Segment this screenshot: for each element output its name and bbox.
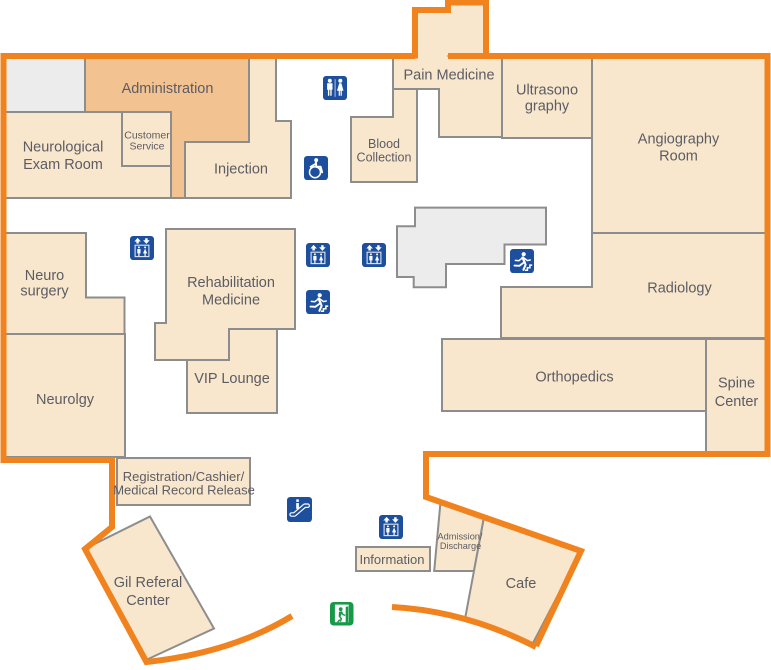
svg-text:Blood: Blood <box>368 137 400 151</box>
svg-text:Gil Referal: Gil Referal <box>114 575 183 591</box>
svg-text:Center: Center <box>715 394 759 410</box>
svg-text:Service: Service <box>129 141 164 153</box>
svg-text:Cafe: Cafe <box>506 576 537 592</box>
svg-text:graphy: graphy <box>525 99 570 115</box>
svg-text:Neurolgy: Neurolgy <box>36 392 95 408</box>
svg-text:Admission/: Admission/ <box>438 532 483 542</box>
svg-text:Administration: Administration <box>122 81 214 97</box>
svg-text:VIP Lounge: VIP Lounge <box>194 371 270 387</box>
svg-text:Medicine: Medicine <box>202 293 260 309</box>
svg-text:Injection: Injection <box>214 162 268 178</box>
svg-text:Discharge: Discharge <box>440 541 481 551</box>
svg-text:surgery: surgery <box>20 284 69 300</box>
svg-text:Ultrasono: Ultrasono <box>516 83 578 99</box>
svg-text:Rehabilitation: Rehabilitation <box>187 275 275 291</box>
svg-text:Exam Room: Exam Room <box>23 157 103 173</box>
svg-text:Medical Record Release: Medical Record Release <box>113 483 255 498</box>
svg-text:Collection: Collection <box>357 151 412 165</box>
svg-text:Radiology: Radiology <box>647 281 712 297</box>
svg-text:Angiography: Angiography <box>638 132 720 148</box>
svg-text:Room: Room <box>659 149 698 165</box>
svg-text:Orthopedics: Orthopedics <box>535 370 613 386</box>
svg-text:Information: Information <box>359 552 424 567</box>
svg-text:Center: Center <box>126 593 170 609</box>
svg-text:Spine: Spine <box>718 376 755 392</box>
svg-text:Neuro: Neuro <box>25 268 65 284</box>
svg-text:Neurological: Neurological <box>23 140 104 156</box>
svg-text:Pain Medicine: Pain Medicine <box>403 68 494 84</box>
